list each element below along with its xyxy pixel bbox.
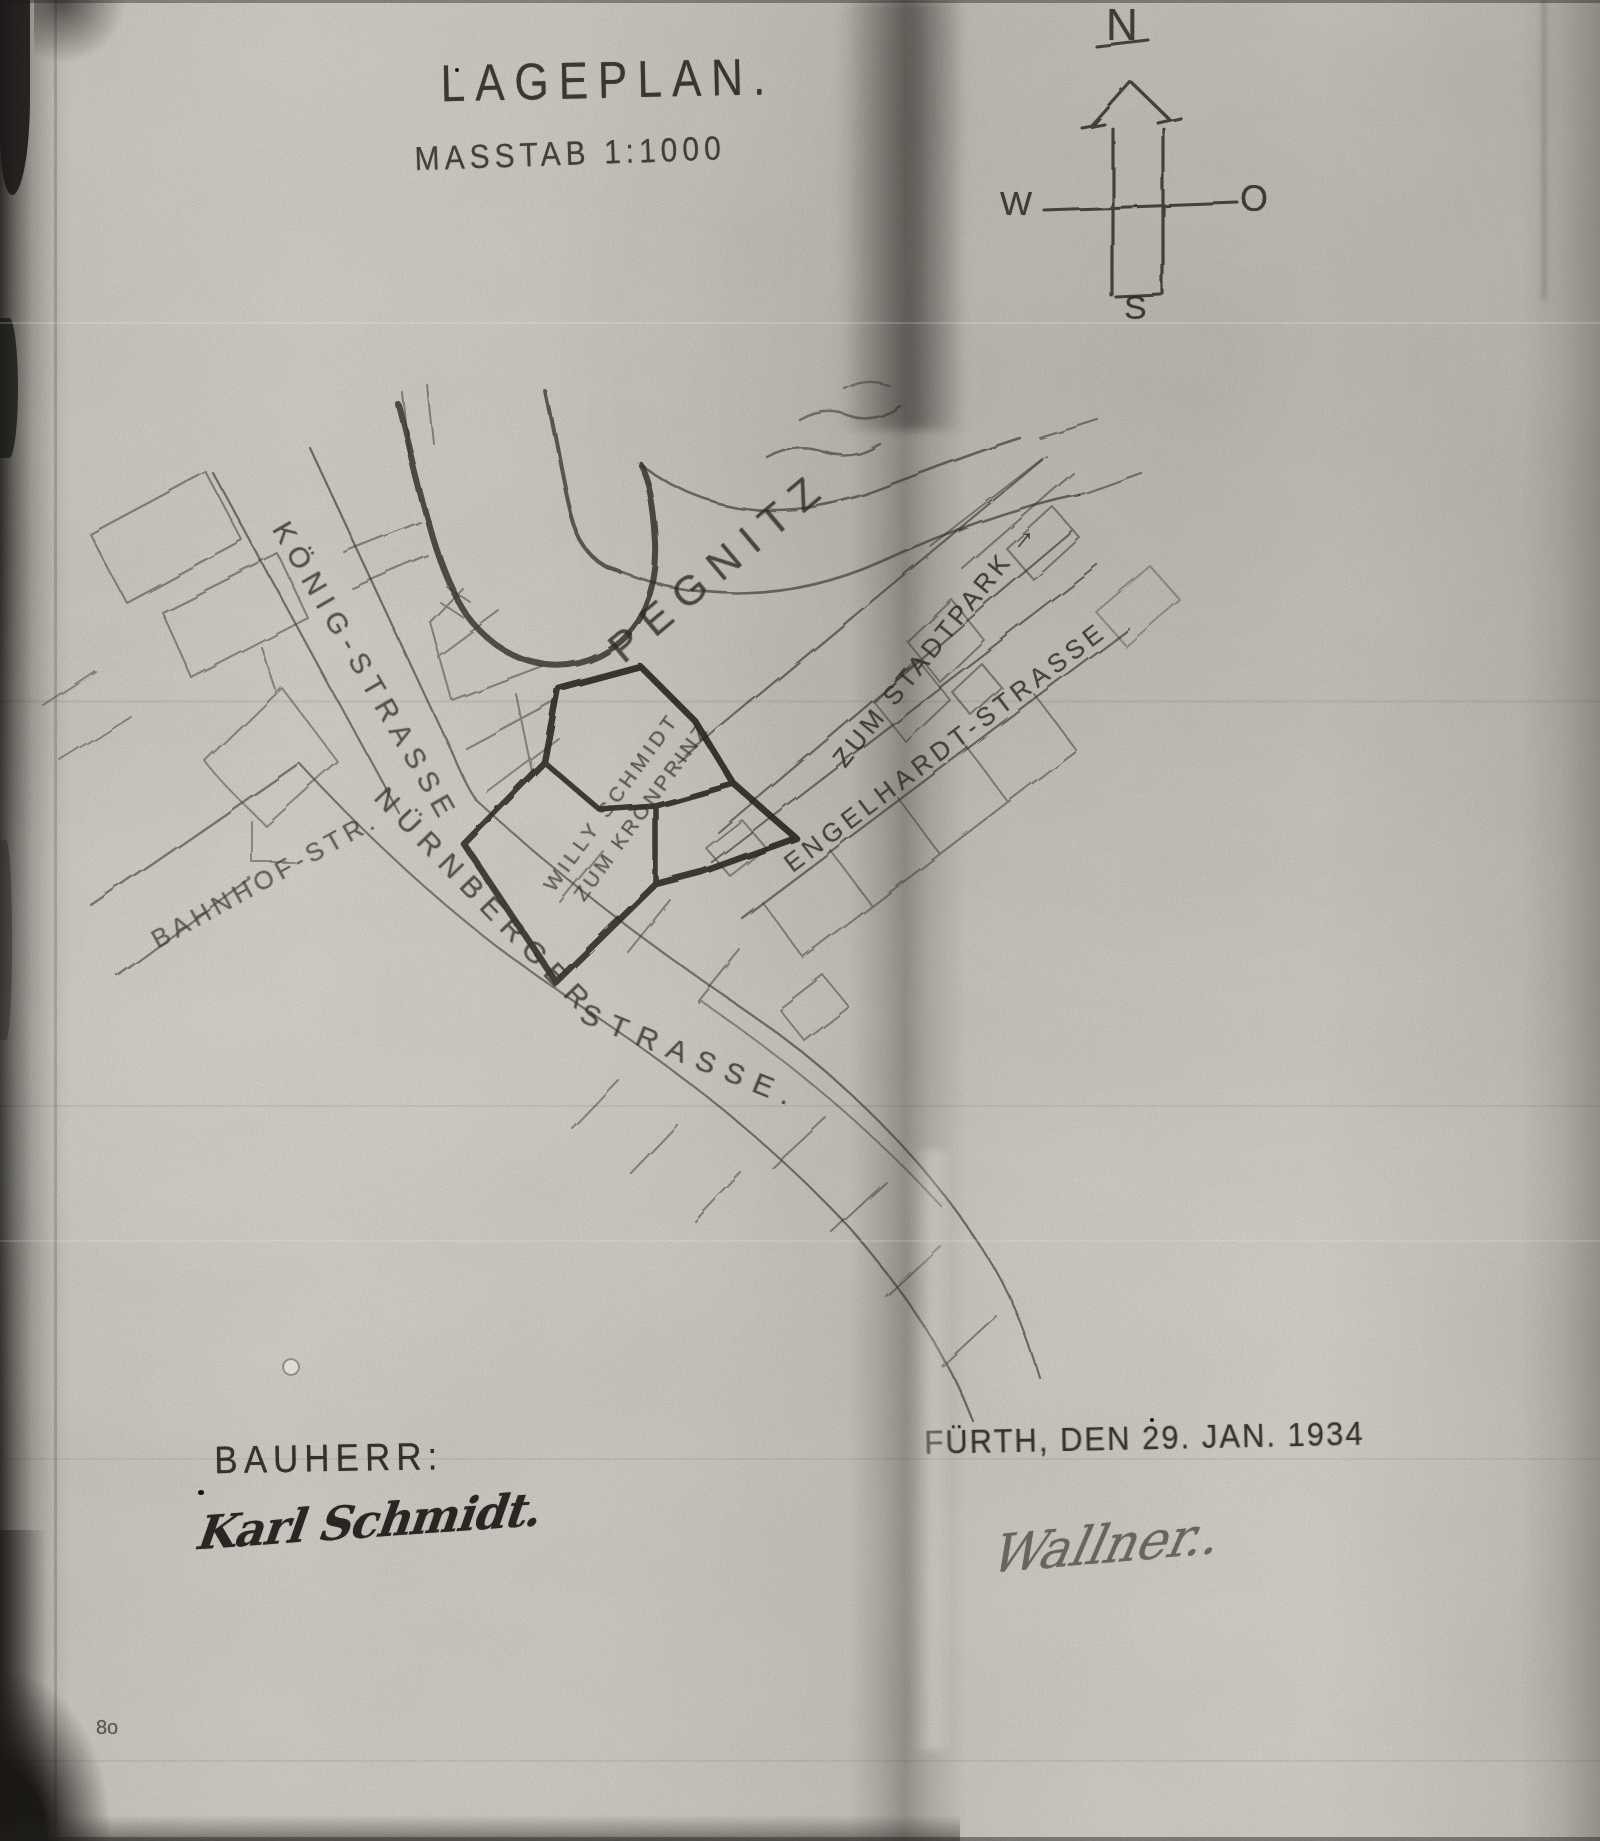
edge-top-line xyxy=(0,0,1600,3)
center-crease-top-shadow xyxy=(836,0,966,430)
center-crease-shadow xyxy=(850,0,965,1841)
fold-left-shadow xyxy=(0,0,70,1841)
edge-right-fold-line xyxy=(1542,0,1546,300)
plot-outline xyxy=(464,666,796,982)
plot-name-label: ZUM KRONPRINZ xyxy=(560,716,716,915)
scan-streak xyxy=(0,322,1600,324)
plan-drawing xyxy=(0,0,1600,1841)
street-label-nuernberger-1: NÜRNBERGER- xyxy=(368,780,616,1036)
ink-speck xyxy=(198,1490,204,1495)
ink-speck xyxy=(1150,1418,1154,1422)
street-label-bahnhofstr: BAHNHOF-STR. xyxy=(146,804,384,955)
compass-graphic xyxy=(1044,40,1238,297)
left-edge-blob-2 xyxy=(0,840,12,1040)
scan-streak xyxy=(0,700,1600,703)
plot-owner-label: WILLY SCHMIDT xyxy=(536,699,692,898)
bottom-smudge xyxy=(0,1815,960,1841)
left-bottom-band xyxy=(0,1530,46,1841)
street-label-zum-stadtpark: ZUM STADTPARK→ xyxy=(824,511,1045,773)
river-pegnitz xyxy=(398,383,1140,665)
street-label-engelhardtstrasse: ENGELHARDT-STRASSE xyxy=(778,616,1113,879)
page-title: LAGEPLAN. xyxy=(440,47,776,113)
approval-signature: Wallner.. xyxy=(984,1504,1225,1585)
smudge-top-left xyxy=(34,0,126,64)
edge-bottom-line xyxy=(0,1837,1600,1841)
plot-label: WILLY SCHMIDT ZUM KRONPRINZ xyxy=(536,699,716,915)
soft-shading xyxy=(0,0,1600,1841)
compass-north-label: N xyxy=(1106,0,1138,50)
scan-streak xyxy=(0,1760,1600,1762)
scan-streak xyxy=(0,1458,1600,1460)
edge-right-shadow xyxy=(1520,0,1600,1841)
scan-streak xyxy=(0,1240,1600,1242)
paper-texture xyxy=(0,0,1600,1841)
client-label: BAUHERR: xyxy=(214,1434,444,1482)
corner-blob-bottom-left xyxy=(0,1671,110,1841)
street-label-nuernberger-2: STRASSE. xyxy=(575,996,807,1116)
left-edge-blob-1 xyxy=(0,318,18,458)
crease-highlight xyxy=(912,1150,954,1750)
zum-stadtpark-text: ZUM STADTPARK xyxy=(826,546,1018,773)
fold-left-line xyxy=(54,0,57,1841)
river-label: PEGNITZ xyxy=(601,462,837,670)
scanned-site-plan: LAGEPLAN. MASSTAB 1:1000 N W O S PEGNITZ… xyxy=(0,0,1600,1841)
place-date-label: FÜRTH, DEN 29. JAN. 1934 xyxy=(924,1415,1365,1463)
scale-label: MASSTAB 1:1000 xyxy=(414,129,726,178)
paper-hole xyxy=(284,1360,298,1374)
compass-west-label: W xyxy=(1000,184,1032,223)
stadtpark-arrow-icon: → xyxy=(992,511,1044,564)
corner-mark: 8o xyxy=(96,1716,118,1739)
building-blocks xyxy=(44,386,1180,1366)
compass-south-label: S xyxy=(1124,288,1147,327)
compass-east-label: O xyxy=(1240,178,1268,220)
ink-speck xyxy=(455,68,459,72)
corner-blob-top-left xyxy=(0,0,30,195)
scan-streak xyxy=(0,1105,1600,1107)
client-signature: Karl Schmidt. xyxy=(192,1482,542,1561)
street-lines xyxy=(92,448,1128,1420)
street-label-koenigstrasse: KÖNIG-STRASSE xyxy=(265,516,465,829)
